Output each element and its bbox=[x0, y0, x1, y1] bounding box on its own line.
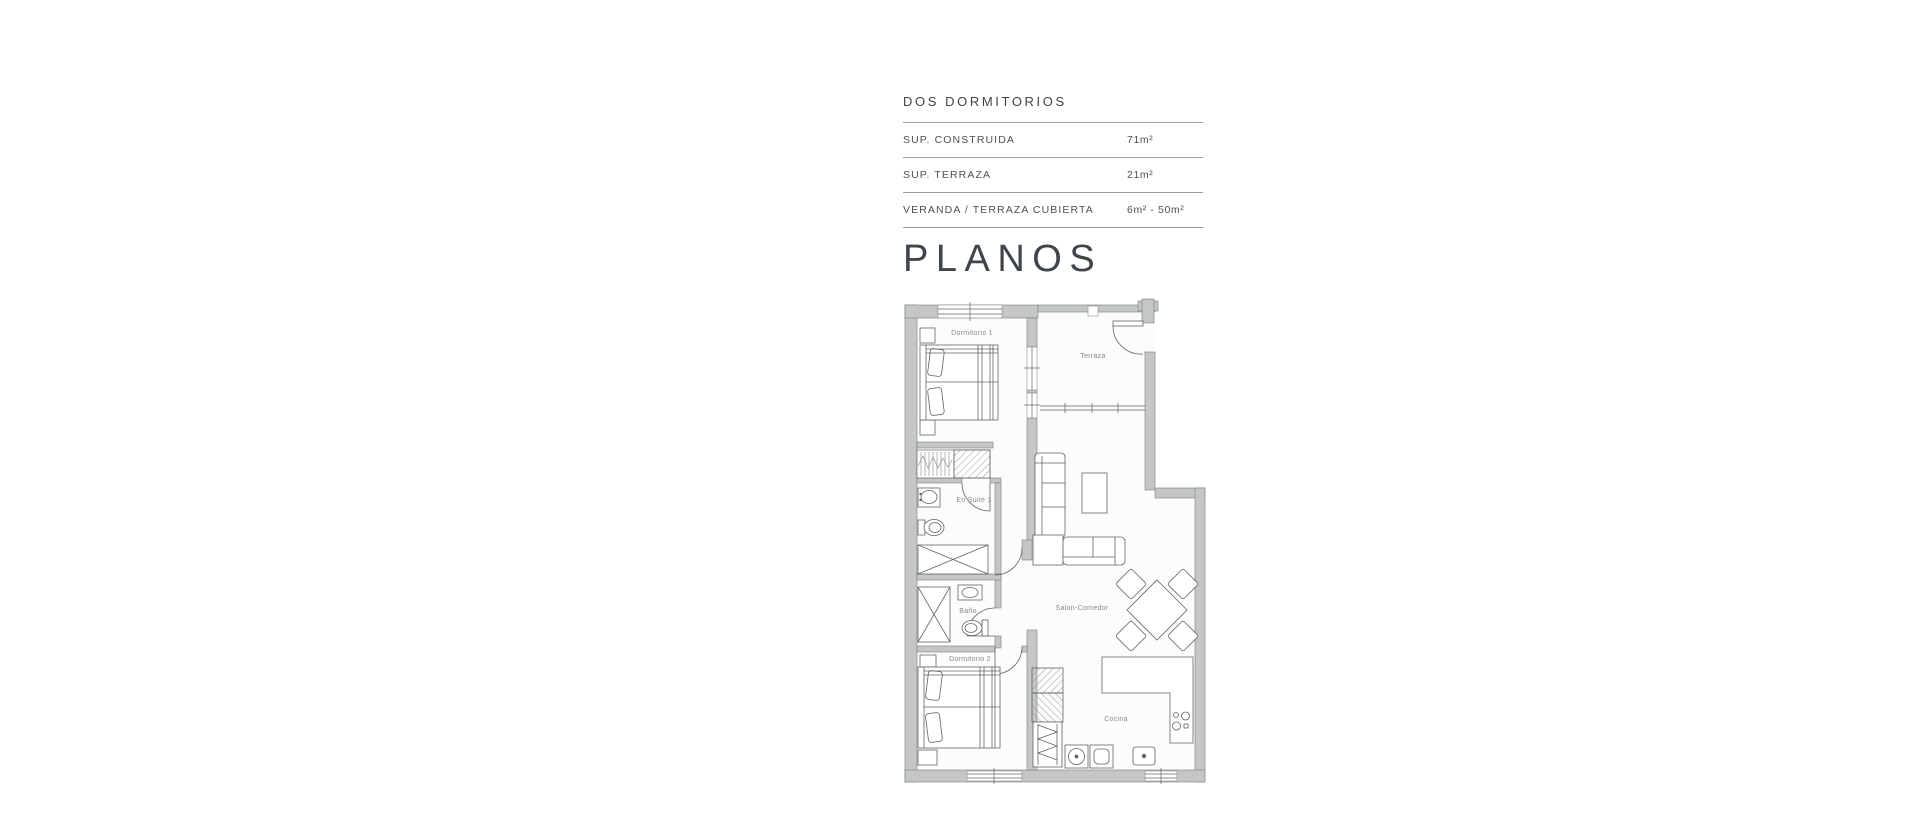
shaft-hatched bbox=[1032, 668, 1063, 722]
window-dormitorio1 bbox=[938, 302, 1002, 321]
sink-icon bbox=[918, 488, 940, 507]
washing-machine-icon bbox=[1065, 745, 1088, 768]
spec-label: SUP. CONSTRUIDA bbox=[903, 134, 1015, 146]
floorplan-drawing: Dormitorio 1 Terraza En Suite 1 Baño Dor… bbox=[900, 298, 1210, 790]
room-label-dormitorio2: Dormitorio 2 bbox=[949, 656, 991, 663]
spec-value: 6m² - 50m² bbox=[1127, 204, 1184, 216]
spec-table: SUP. CONSTRUIDA 71m² SUP. TERRAZA 21m² V… bbox=[903, 122, 1203, 228]
room-label-cocina: Cocina bbox=[1104, 716, 1128, 723]
section-heading: PLANOS bbox=[903, 238, 1102, 281]
room-label-ensuite: En Suite 1 bbox=[956, 497, 991, 504]
room-label-terraza: Terraza bbox=[1080, 353, 1105, 360]
table-row: VERANDA / TERRAZA CUBIERTA 6m² - 50m² bbox=[903, 192, 1203, 228]
shower-icon bbox=[918, 587, 950, 642]
page-title: DOS DORMITORIOS bbox=[903, 94, 1067, 109]
wall-left bbox=[905, 305, 917, 782]
dining-set-icon bbox=[1115, 568, 1198, 651]
page: DOS DORMITORIOS SUP. CONSTRUIDA 71m² SUP… bbox=[0, 0, 1920, 837]
spec-label: SUP. TERRAZA bbox=[903, 169, 991, 181]
washbasin-icon bbox=[958, 585, 982, 600]
wardrobe-icon bbox=[917, 450, 990, 478]
table-row: SUP. CONSTRUIDA 71m² bbox=[903, 122, 1203, 157]
toilet-icon bbox=[918, 520, 944, 536]
dishwasher-icon bbox=[1090, 745, 1113, 768]
coffee-table-icon bbox=[1082, 473, 1107, 513]
room-label-salon: Salon-Comedor bbox=[1056, 605, 1109, 612]
shower-icon bbox=[918, 545, 988, 574]
terrace-post bbox=[1088, 306, 1098, 316]
toilet-icon bbox=[962, 620, 988, 636]
spec-value: 71m² bbox=[1127, 134, 1153, 146]
wall-terrace-right bbox=[1145, 352, 1155, 490]
spec-value: 21m² bbox=[1127, 169, 1153, 181]
room-label-bano: Baño bbox=[959, 608, 977, 615]
drying-rack-icon bbox=[1033, 722, 1062, 767]
kitchen-sink-icon bbox=[1133, 747, 1155, 765]
spec-label: VERANDA / TERRAZA CUBIERTA bbox=[903, 204, 1094, 216]
room-label-dormitorio1: Dormitorio 1 bbox=[951, 330, 993, 337]
floorplan: Dormitorio 1 Terraza En Suite 1 Baño Dor… bbox=[900, 298, 1210, 790]
table-row: SUP. TERRAZA 21m² bbox=[903, 157, 1203, 192]
